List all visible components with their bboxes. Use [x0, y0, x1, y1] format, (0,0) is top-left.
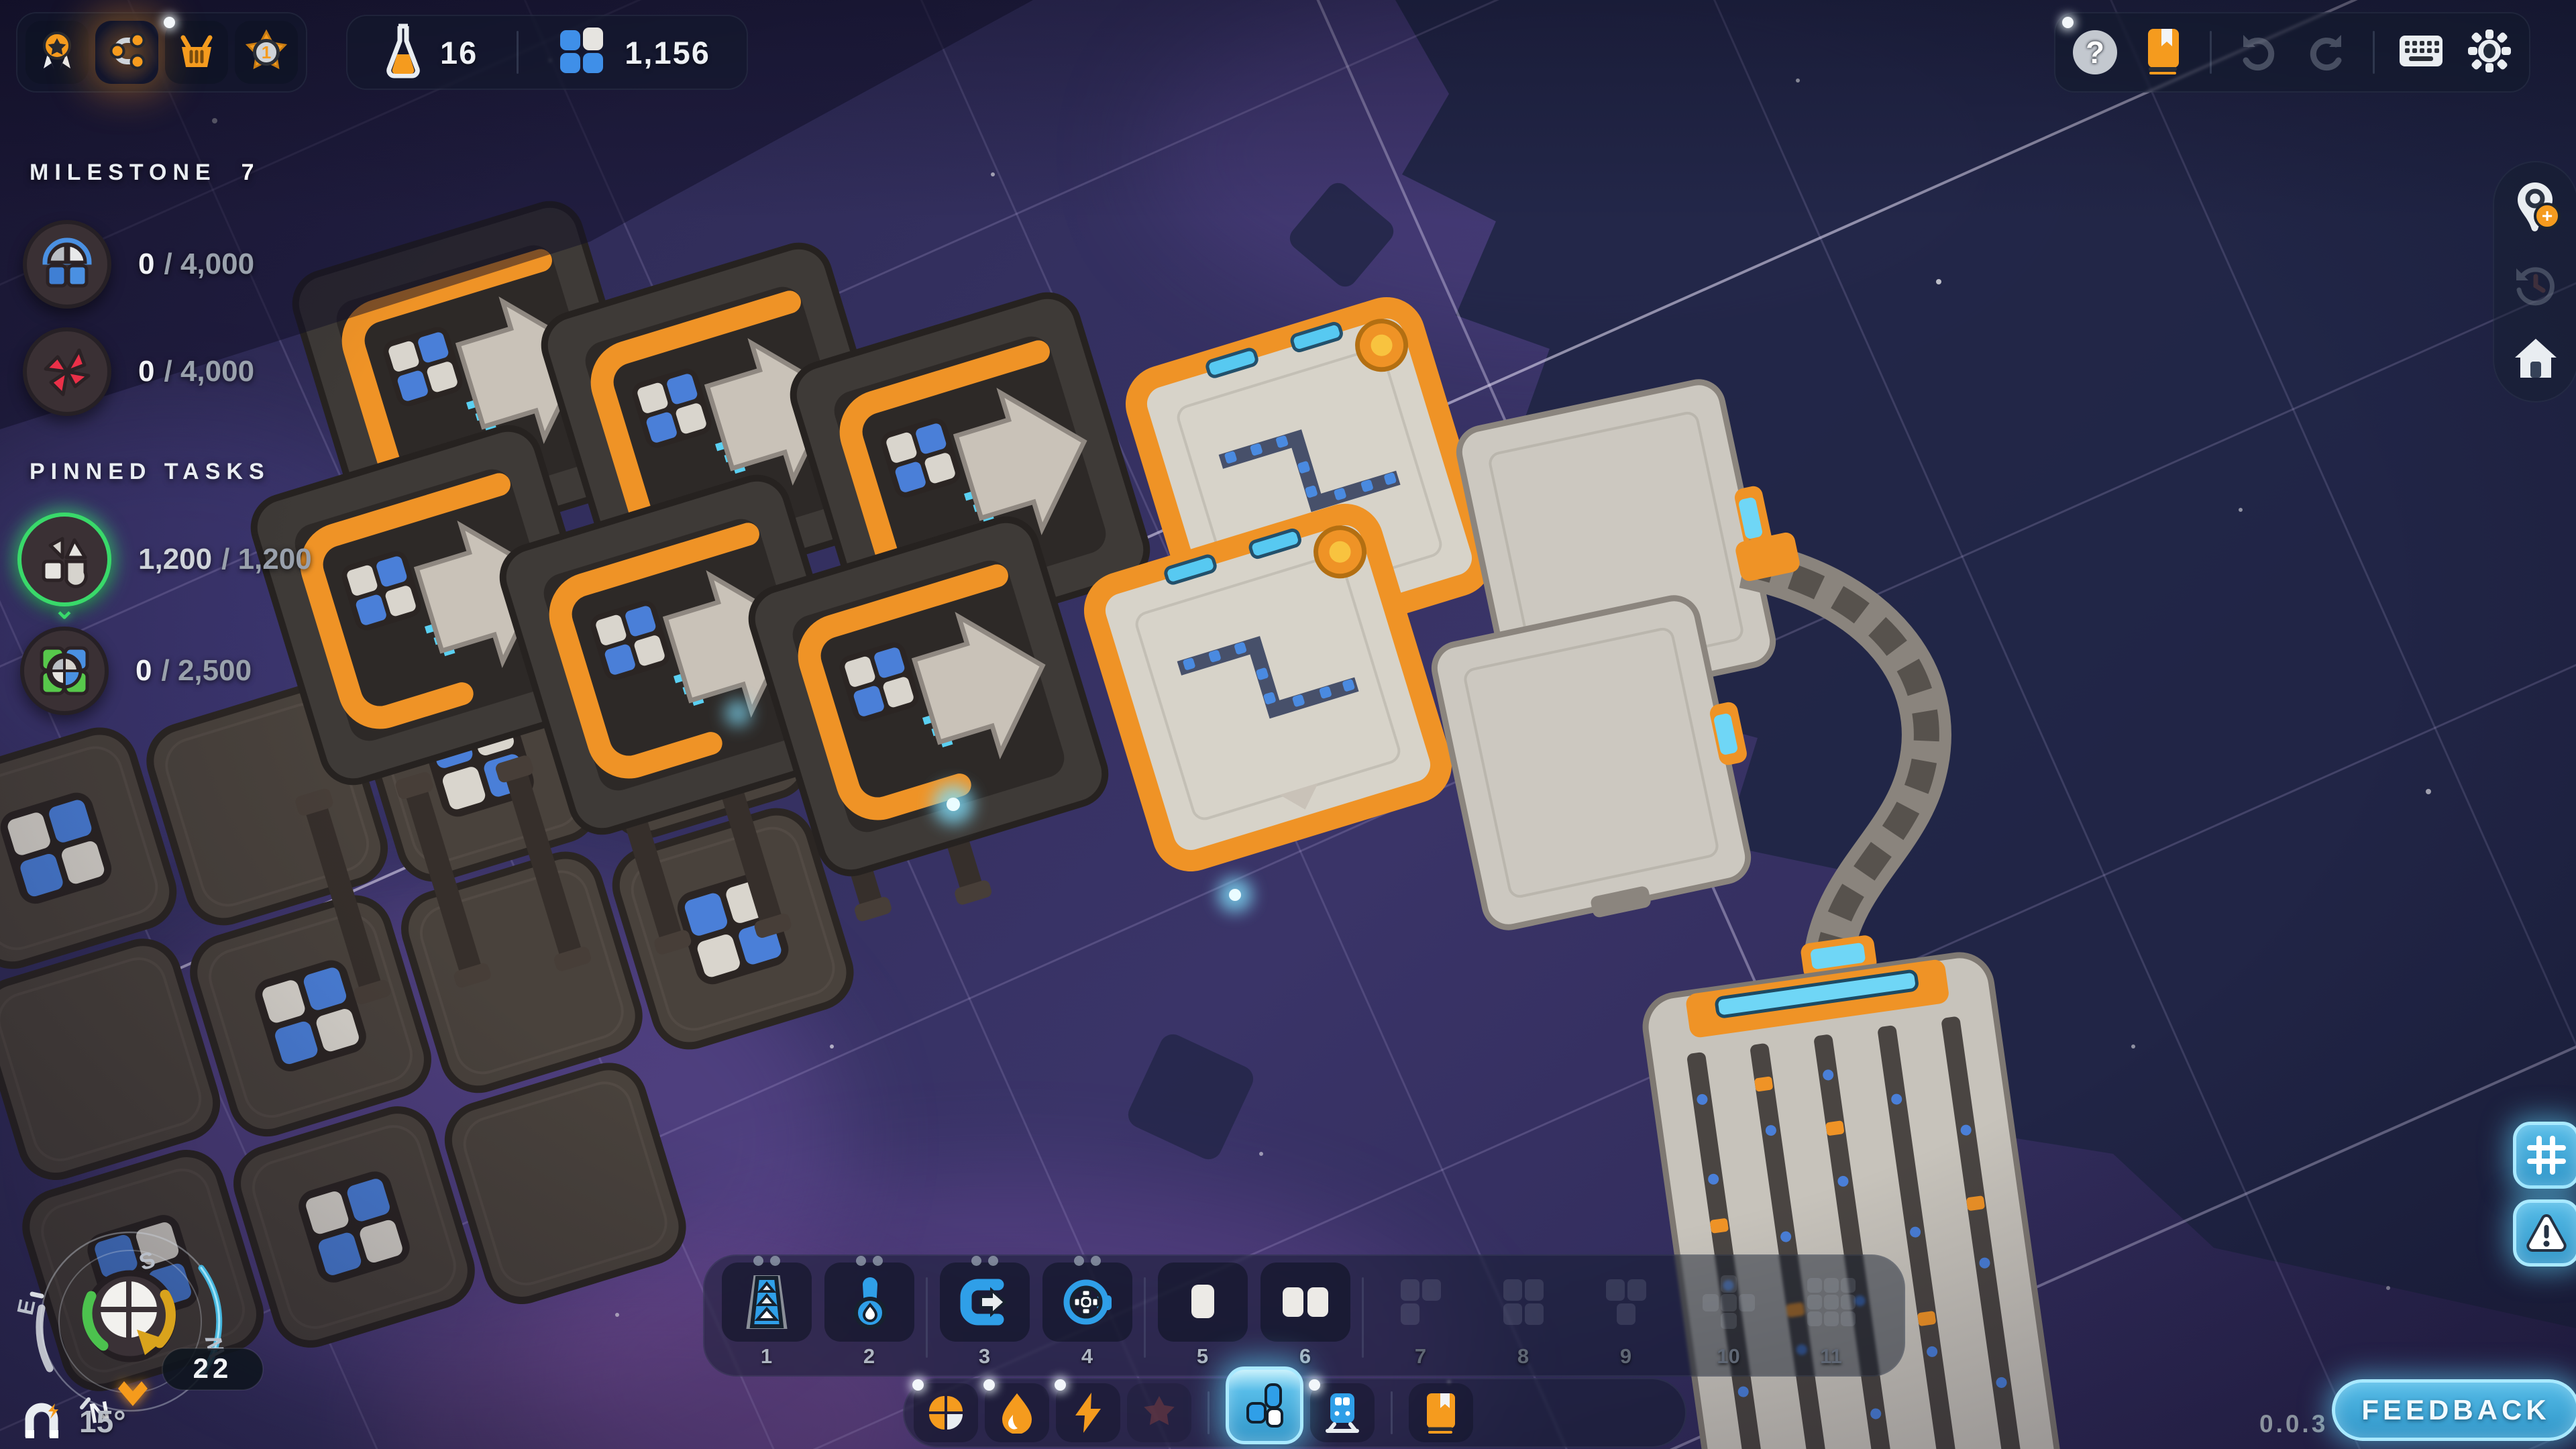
platform-3x3-icon: [1786, 1263, 1876, 1342]
resource-bar: 16 1,156: [346, 15, 748, 90]
shop-button[interactable]: [165, 21, 228, 84]
hotbar-slot-6[interactable]: 6: [1254, 1263, 1356, 1368]
notification-dot: [983, 1379, 995, 1391]
blueprint-grid-button[interactable]: [2513, 1122, 2576, 1189]
hotbar-slot-4[interactable]: 4: [1036, 1263, 1138, 1368]
view-controls: +: [2493, 161, 2576, 402]
gear-icon: [2467, 29, 2512, 76]
hotbar-slot-9[interactable]: 9: [1574, 1263, 1677, 1368]
magnet-icon[interactable]: [20, 1399, 64, 1444]
grid-icon: [2526, 1134, 2567, 1176]
milestone-shape-icon-window: [23, 220, 111, 309]
help-button[interactable]: ?: [2063, 21, 2127, 84]
task-complete-check: ⌄: [53, 594, 76, 625]
rotation-angle: 15°: [79, 1403, 126, 1440]
milestone-goal-1-progress: 0/ 4,000: [138, 248, 254, 281]
flask-icon: [384, 22, 423, 83]
pinned-task-row[interactable]: ⌄ 1,200/ 1,200: [17, 513, 312, 606]
redo-button[interactable]: [2295, 21, 2358, 84]
warning-icon: [2525, 1213, 2568, 1253]
plus-glyph: +: [2542, 205, 2553, 226]
basket-icon: [175, 30, 218, 76]
settings-button[interactable]: [2458, 21, 2521, 84]
shapes-layer-button[interactable]: [914, 1383, 978, 1442]
notification-dot: [1309, 1379, 1320, 1391]
shop-notification-dot: [164, 17, 175, 28]
milestone-goal-row[interactable]: 0/ 4,000: [23, 327, 254, 416]
notification-dot: [912, 1379, 924, 1391]
achievements-button[interactable]: [25, 21, 89, 84]
undo-button[interactable]: [2226, 21, 2290, 84]
milestones-button[interactable]: 1: [235, 21, 298, 84]
star-rank-icon: 1: [243, 29, 290, 76]
shapes-layer-icon: [926, 1393, 965, 1432]
shortcuts-button[interactable]: [2390, 21, 2453, 84]
milestone-goal-2-progress: 0/ 4,000: [138, 355, 254, 388]
divider: [926, 1277, 928, 1358]
fluid-extractor-icon: [824, 1263, 914, 1342]
milestone-shape-icon-star: [23, 327, 111, 416]
wiki-book-icon: [1424, 1392, 1458, 1434]
trains-layer-button[interactable]: [1310, 1383, 1375, 1442]
energy-layer-icon: [1071, 1391, 1105, 1434]
help-icon: ?: [2073, 30, 2117, 74]
platform-2x2-icon: [1479, 1263, 1568, 1342]
redo-icon: [2305, 30, 2348, 76]
layer-toolbar: [903, 1378, 1686, 1448]
energy-layer-button[interactable]: [1056, 1383, 1120, 1442]
system-toolbar: ?: [2054, 12, 2530, 93]
hotbar-slot-1[interactable]: 1: [715, 1263, 818, 1368]
hotbar-slot-8[interactable]: 8: [1472, 1263, 1574, 1368]
medal-icon: [36, 30, 78, 76]
version-label: 0.0.3: [2259, 1410, 2328, 1438]
hotbar-slot-5[interactable]: 5: [1151, 1263, 1254, 1368]
star-layer-icon: [1140, 1394, 1178, 1432]
wiki-book-button[interactable]: [1409, 1383, 1473, 1442]
pinned-tasks-title: PINNED TASKS: [30, 459, 270, 485]
pinned-task-row[interactable]: 0/ 2,500: [20, 627, 252, 715]
pin-dots: [1074, 1256, 1101, 1266]
keyboard-icon: [2398, 34, 2444, 71]
milestone-title: MILESTONE 7: [30, 160, 254, 186]
rotation-indicator: 15°: [20, 1399, 126, 1444]
shapes-stored: 1,156: [528, 16, 740, 89]
shapes-stored-value: 1,156: [625, 34, 710, 71]
task-shape-icon-layered: [20, 627, 109, 715]
platform-cross-icon: [1684, 1263, 1774, 1342]
space-belt-icon: [940, 1263, 1030, 1342]
home-view-button[interactable]: [2512, 336, 2559, 384]
research-points-value: 16: [440, 34, 478, 71]
divider: [2210, 31, 2212, 74]
star-layer-button[interactable]: [1127, 1383, 1191, 1442]
divider: [517, 31, 519, 74]
compass-east: E: [13, 1297, 41, 1318]
pinned-task-2-progress: 0/ 2,500: [136, 654, 252, 688]
add-waypoint-button[interactable]: +: [2511, 180, 2561, 237]
game-screen: 1 16 1,156: [0, 0, 2576, 1449]
milestone-number: 7: [241, 160, 254, 185]
corner-controls: [2513, 1122, 2576, 1267]
divider: [1144, 1277, 1146, 1358]
hotbar-slot-3[interactable]: 3: [933, 1263, 1036, 1368]
feedback-button[interactable]: FEEDBACK: [2332, 1379, 2576, 1441]
main-menu-toolbar: 1: [16, 12, 307, 93]
view-history-button[interactable]: [2514, 263, 2558, 311]
divider: [1362, 1277, 1364, 1358]
pin-dots: [971, 1256, 998, 1266]
divider: [1207, 1391, 1210, 1434]
platform-L-icon: [1376, 1263, 1466, 1342]
platform-1x1-icon: [1158, 1263, 1248, 1342]
help-notification-dot: [2062, 17, 2074, 28]
hotbar-slot-10[interactable]: 10: [1677, 1263, 1780, 1368]
task-shape-icon-windmill: ⌄: [17, 513, 111, 606]
undo-icon: [2237, 30, 2279, 76]
platforms-layer-icon: [1242, 1383, 1287, 1428]
shape-quad-icon: [557, 26, 607, 79]
rank-badge: 1: [253, 39, 280, 66]
research-points: 16: [354, 16, 507, 89]
platform-1x2-icon: [1260, 1263, 1350, 1342]
knowledge-button[interactable]: [2132, 21, 2195, 84]
machine-port-icon: [1042, 1263, 1132, 1342]
notifications-warning-button[interactable]: [2513, 1199, 2576, 1267]
research-button[interactable]: [95, 21, 158, 84]
hotbar-slot-2[interactable]: 2: [818, 1263, 920, 1368]
hotbar-slot-11[interactable]: 11: [1780, 1263, 1882, 1368]
pinned-task-1-progress: 1,200/ 1,200: [138, 543, 312, 576]
shape-extractor-icon: [722, 1263, 812, 1342]
platform-count: 22: [193, 1352, 233, 1384]
hotbar: 1 2 3: [703, 1254, 1905, 1377]
notification-dot: [1055, 1379, 1066, 1391]
platform-T-icon: [1581, 1263, 1671, 1342]
book-icon: [2144, 28, 2183, 78]
hotbar-slot-7[interactable]: 7: [1369, 1263, 1472, 1368]
pin-dots: [856, 1256, 883, 1266]
fluids-layer-button[interactable]: [985, 1383, 1049, 1442]
divider: [2373, 31, 2375, 74]
trains-layer-icon: [1324, 1392, 1361, 1434]
divider: [1391, 1391, 1393, 1434]
game-viewport[interactable]: [0, 0, 2576, 1449]
pin-dots: [753, 1256, 780, 1266]
research-tree-icon: [105, 30, 148, 76]
compass-emblem: [87, 1273, 173, 1359]
fluids-layer-icon: [1000, 1392, 1034, 1434]
milestone-goal-row[interactable]: 0/ 4,000: [23, 220, 254, 309]
platforms-layer-button[interactable]: [1226, 1366, 1303, 1444]
